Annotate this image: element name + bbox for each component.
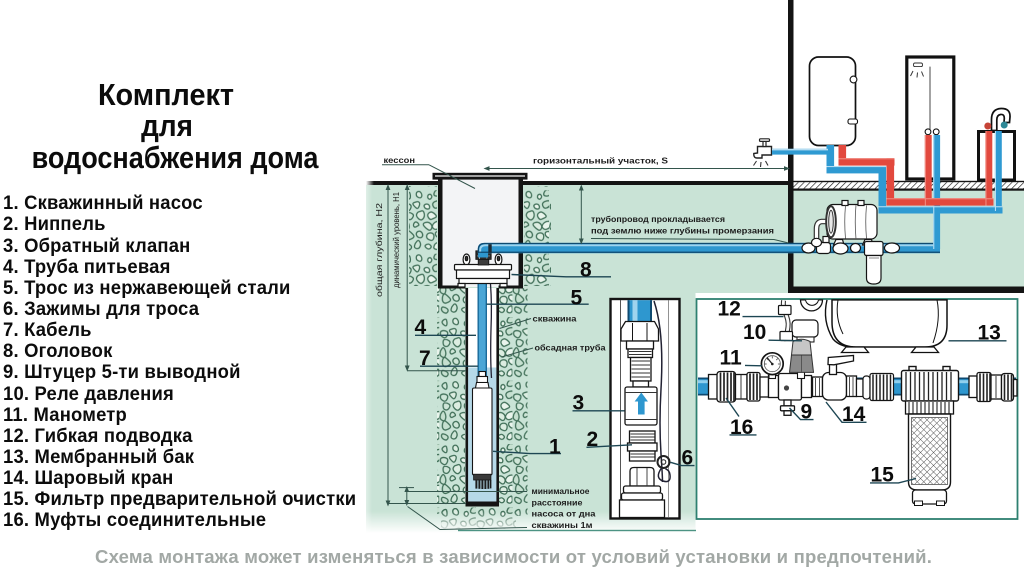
svg-text:скважина: скважина	[533, 314, 577, 324]
svg-text:12: 12	[718, 298, 741, 321]
svg-text:расстояние: расстояние	[532, 497, 583, 507]
svg-text:под землю ниже глубины промерз: под землю ниже глубины промерзания	[591, 226, 774, 236]
svg-text:минимальное: минимальное	[532, 486, 590, 496]
svg-text:динамический уровень, Н1: динамический уровень, Н1	[392, 191, 401, 288]
svg-text:2: 2	[587, 428, 599, 451]
svg-text:скважины 1м: скважины 1м	[532, 520, 593, 530]
svg-text:14: 14	[842, 403, 866, 426]
svg-text:15: 15	[871, 464, 895, 487]
svg-text:горизонтальный участок, S: горизонтальный участок, S	[533, 156, 669, 166]
svg-text:3: 3	[573, 392, 585, 415]
svg-text:кессон: кессон	[384, 155, 416, 165]
svg-text:4: 4	[415, 316, 427, 339]
svg-text:общая глубина, Н2: общая глубина, Н2	[375, 202, 384, 297]
svg-text:11: 11	[720, 346, 743, 369]
svg-text:обсадная труба: обсадная труба	[535, 343, 606, 353]
svg-text:16: 16	[730, 416, 753, 439]
svg-text:1: 1	[549, 436, 561, 459]
svg-text:10: 10	[743, 321, 766, 344]
svg-text:9: 9	[801, 400, 813, 423]
svg-text:6: 6	[682, 446, 694, 469]
svg-text:13: 13	[978, 322, 1001, 345]
svg-text:трубопровод прокладывается: трубопровод прокладывается	[591, 214, 725, 224]
svg-text:насоса от дна: насоса от дна	[532, 509, 596, 519]
svg-text:8: 8	[580, 258, 592, 281]
svg-text:7: 7	[419, 347, 431, 370]
svg-text:5: 5	[571, 286, 583, 309]
